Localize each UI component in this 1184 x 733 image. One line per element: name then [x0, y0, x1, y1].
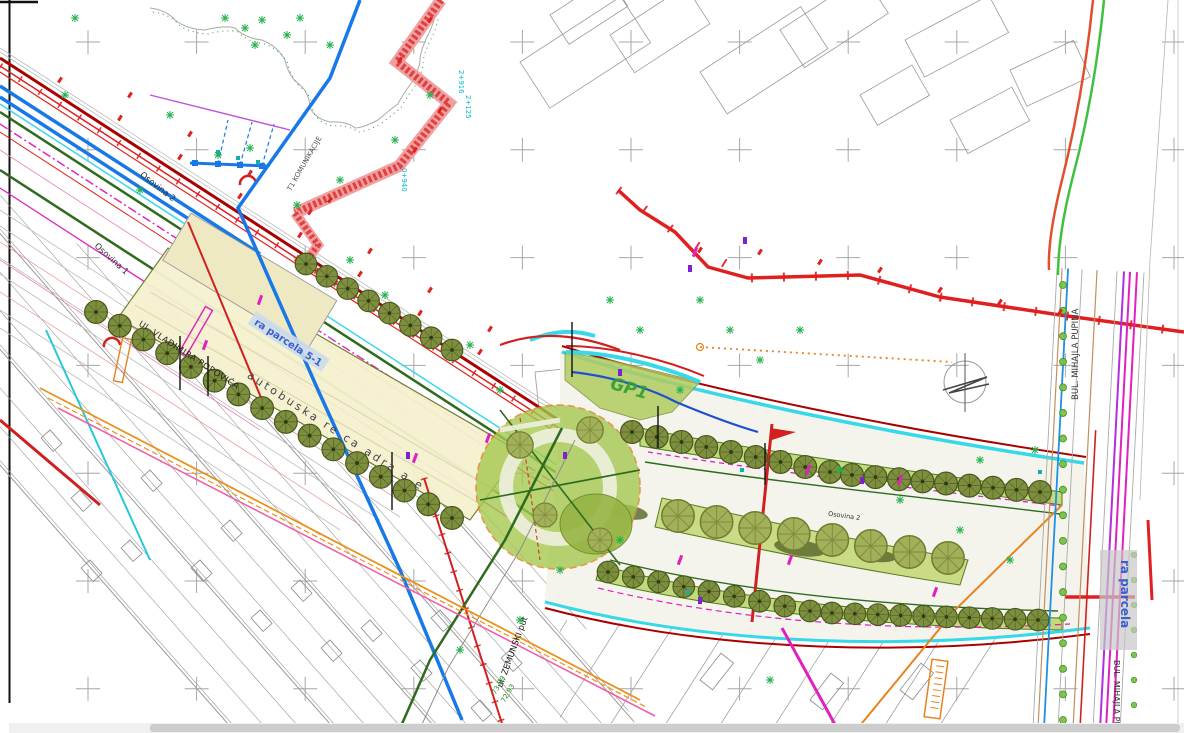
scrollbar-thumb[interactable] [150, 724, 1180, 732]
site-plan-drawing: ra parcela 5-1 ra parcela GP1 Osovina 1 … [0, 0, 1184, 733]
label-osovina-1: Osovina 1 [92, 241, 130, 277]
building-outlines [520, 0, 1090, 408]
cad-viewport[interactable]: { "map": { "labels": { "osovina_1": "Oso… [0, 0, 1184, 733]
roundabout [476, 405, 640, 569]
label-t1-komunikacije: T1 KOMUNIKACIJE [285, 135, 323, 193]
survey-boundary-outline [150, 8, 438, 132]
horizontal-scrollbar[interactable] [9, 723, 1184, 733]
label-mihajla-pupina-2: BUL. MIHAJLA PUPINA [1112, 660, 1121, 733]
bulevar-mihajla-pupina-road [1033, 268, 1144, 733]
label-parcela: ra parcela [1118, 560, 1132, 628]
label-chainage-2: 2+125 [464, 95, 472, 119]
right-road-top-curves [1049, 0, 1168, 500]
north-arrow-icon [943, 353, 989, 412]
label-mihajla-pupina: BUL. MIHAJLA PUPINA [1071, 308, 1081, 400]
label-chainage-3: 0+940 [400, 168, 408, 192]
label-chainage-1: 2+916 [457, 70, 465, 94]
